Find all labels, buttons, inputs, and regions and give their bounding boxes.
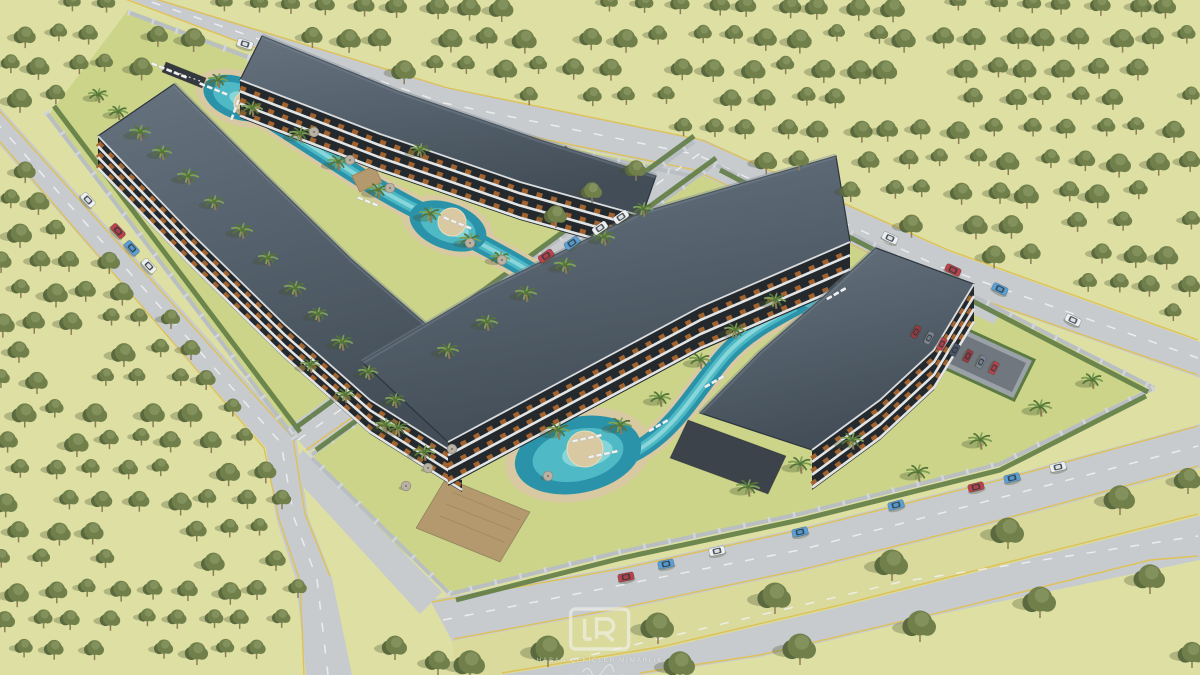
site-plan-render xyxy=(0,0,1200,675)
architectural-aerial-render: HASAN ÇEKİÇLER MİMARLIK xyxy=(0,0,1200,675)
